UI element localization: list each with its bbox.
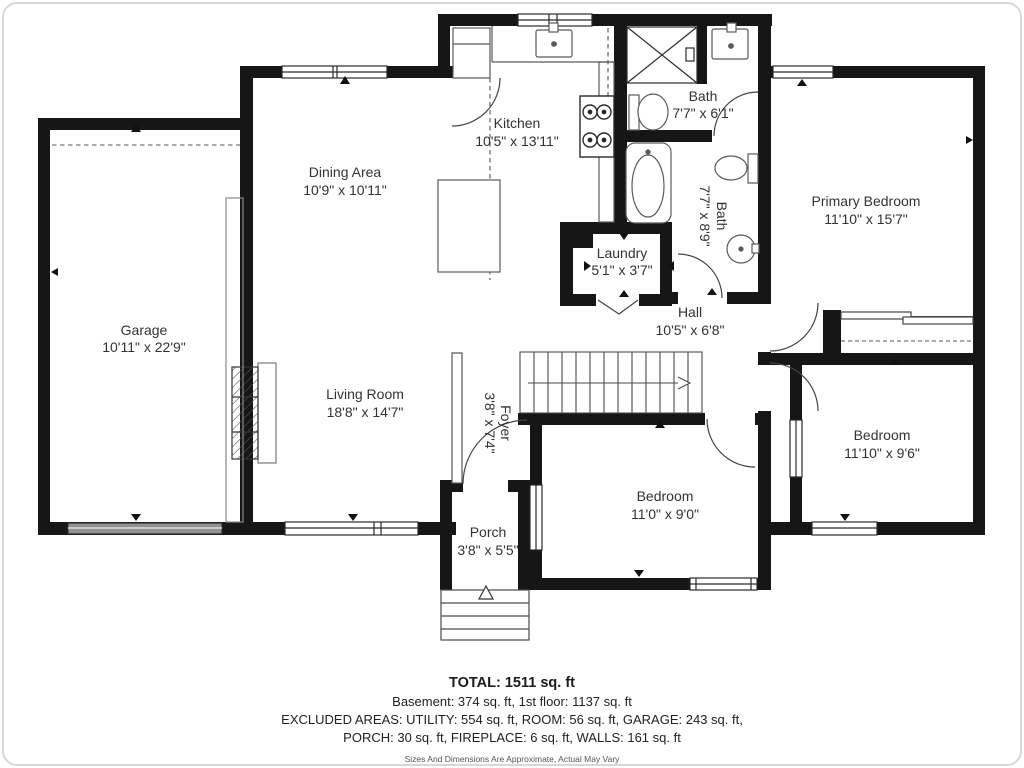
room-label-living-room: Living Room [326, 386, 404, 402]
room-label-hall: Hall [678, 304, 702, 320]
room-dims-primary: 11'10" x 15'7" [824, 211, 908, 227]
summary-line4: PORCH: 30 sq. ft, FIREPLACE: 6 sq. ft, W… [343, 730, 681, 745]
room-dims-bath-main: 7'7" x 8'9" [697, 185, 713, 246]
window-dining [282, 66, 387, 78]
room-dims-bath-top: 7'7" x 6'1" [672, 105, 733, 121]
room-label-porch: Porch [470, 524, 507, 540]
garage-door [68, 523, 222, 534]
bathtub-icon [626, 143, 671, 223]
bath-sink-icon [712, 23, 748, 59]
room-label-bedroom-middle: Bedroom [637, 488, 694, 504]
summary-total: TOTAL: 1511 sq. ft [449, 675, 575, 691]
room-dims-porch: 3'8" x 5'5" [457, 542, 518, 558]
room-label-foyer: Foyer [498, 405, 514, 441]
window-primary [773, 66, 833, 78]
room-dims-dining: 10'9" x 10'11" [303, 182, 387, 198]
room-dims-living-room: 18'8" x 14'7" [327, 404, 404, 420]
window-bedroom-right-left [790, 420, 802, 477]
foyer-partition [452, 353, 462, 483]
refrigerator-icon [453, 28, 490, 78]
summary-line2: Basement: 374 sq. ft, 1st floor: 1137 sq… [392, 694, 632, 709]
window-bedroom-middle [690, 578, 757, 590]
window-bedroom-middle-left [530, 485, 542, 550]
room-dims-bedroom-middle: 11'0" x 9'0" [631, 506, 699, 522]
room-dims-kitchen: 10'5" x 13'11" [475, 133, 559, 149]
room-label-laundry: Laundry [597, 245, 648, 261]
room-dims-hall: 10'5" x 6'8" [656, 322, 725, 338]
toilet-top-icon [629, 94, 668, 130]
summary-disclaimer: Sizes And Dimensions Are Approximate, Ac… [405, 754, 621, 764]
room-label-bath-main: Bath [714, 202, 730, 231]
room-label-garage: Garage [121, 322, 168, 338]
shower-icon [627, 27, 697, 83]
room-label-kitchen: Kitchen [494, 115, 541, 131]
summary-line3: EXCLUDED AREAS: UTILITY: 554 sq. ft, ROO… [281, 712, 743, 727]
stove-icon [580, 96, 614, 157]
window-living [285, 522, 418, 535]
room-label-bedroom-right: Bedroom [854, 427, 911, 443]
room-label-bath-top: Bath [689, 88, 718, 104]
dining-table-icon [438, 180, 500, 272]
stairs [520, 352, 702, 413]
room-dims-bedroom-right: 11'10" x 9'6" [844, 445, 920, 461]
room-dims-laundry: 5'1" x 3'7" [591, 262, 652, 278]
window-bedroom-right [812, 522, 877, 535]
floor-plan: Kitchen 10'5" x 13'11" Dining Area 10'9"… [0, 0, 1024, 768]
room-label-primary: Primary Bedroom [812, 193, 921, 209]
room-dims-foyer: 3'8" x 7'4" [482, 392, 498, 453]
room-dims-garage: 10'11" x 22'9" [102, 339, 186, 355]
porch-steps [441, 586, 529, 640]
room-label-dining: Dining Area [309, 164, 382, 180]
